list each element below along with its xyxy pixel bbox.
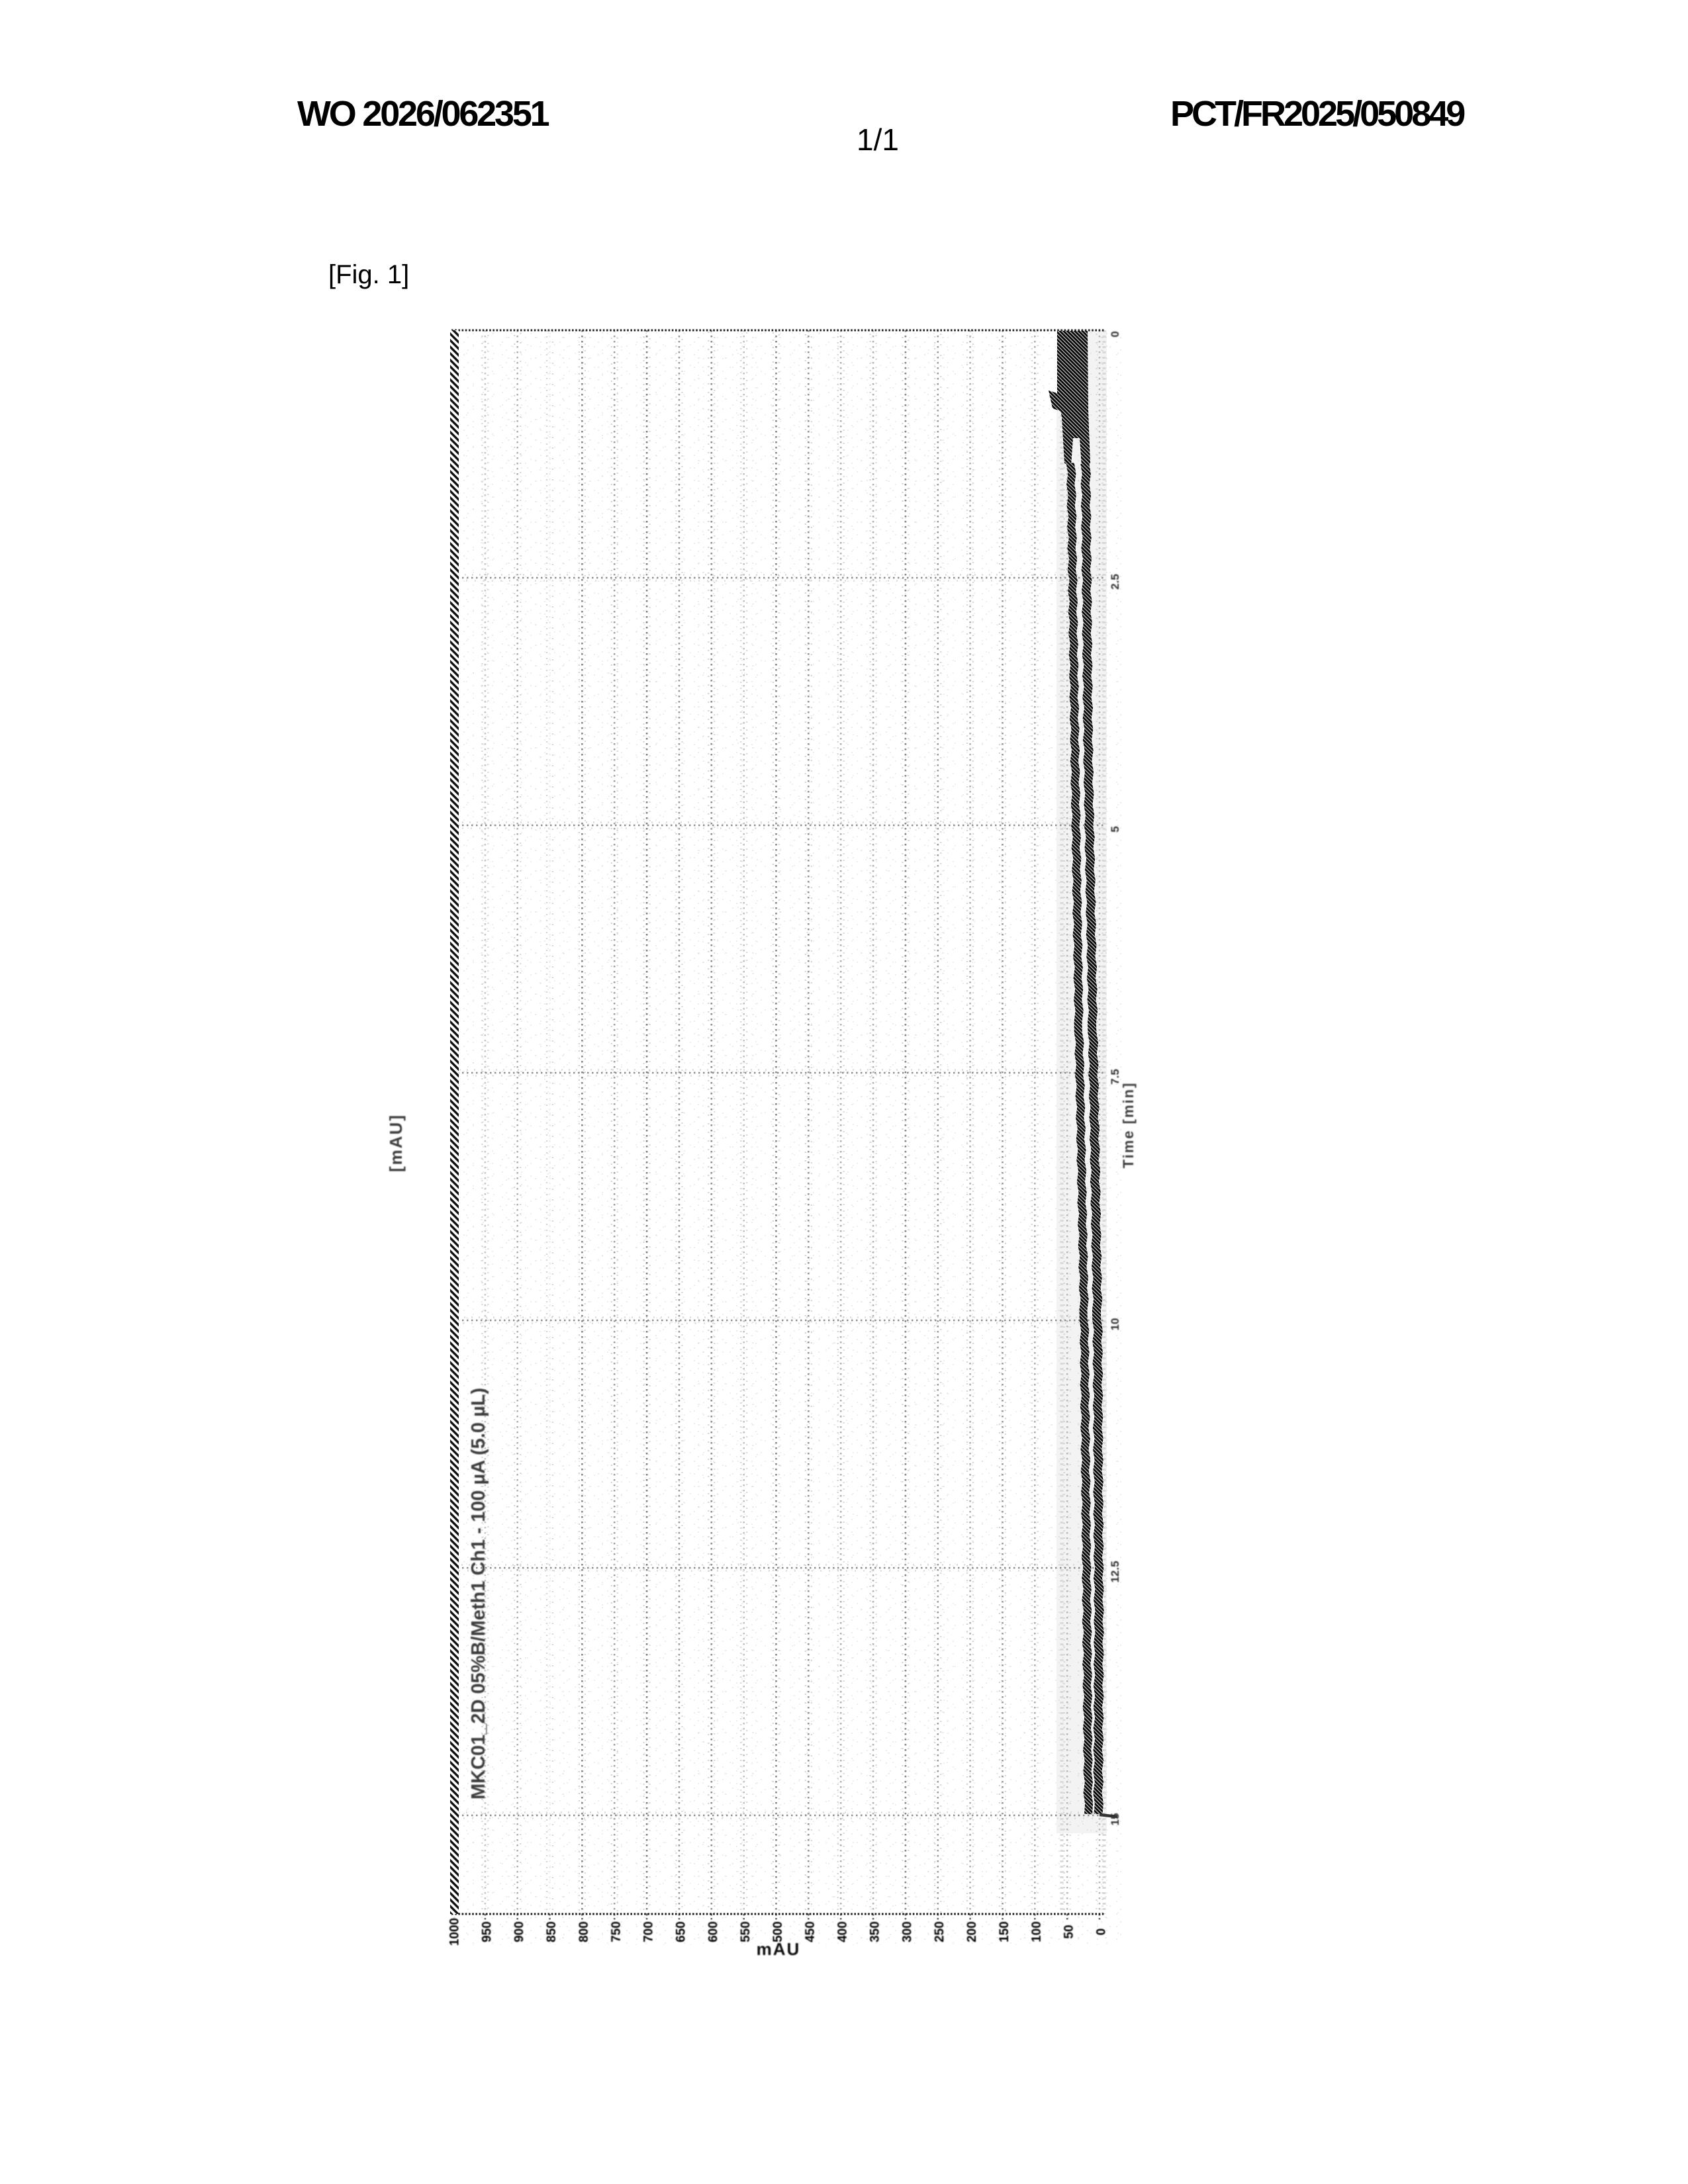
svg-text:550: 550 (739, 1921, 753, 1942)
svg-text:5: 5 (1109, 826, 1121, 832)
svg-text:250: 250 (933, 1921, 947, 1942)
svg-text:15: 15 (1109, 1813, 1121, 1826)
svg-text:600: 600 (706, 1921, 720, 1942)
svg-text:mAU: mAU (757, 1939, 801, 1959)
svg-text:10: 10 (1109, 1318, 1121, 1331)
svg-text:2.5: 2.5 (1109, 574, 1121, 590)
svg-text:400: 400 (836, 1921, 850, 1942)
svg-text:50: 50 (1062, 1925, 1076, 1938)
svg-text:MKC01_2D 05%B/Meth1 Ch1 - 100: MKC01_2D 05%B/Meth1 Ch1 - 100 µA (5.0 µL… (468, 1388, 489, 1799)
svg-text:450: 450 (804, 1921, 818, 1942)
svg-text:850: 850 (545, 1921, 559, 1942)
svg-text:300: 300 (900, 1921, 914, 1942)
svg-text:700: 700 (642, 1921, 656, 1942)
svg-text:1000: 1000 (448, 1918, 462, 1946)
svg-text:800: 800 (577, 1921, 591, 1942)
svg-text:650: 650 (675, 1921, 688, 1942)
svg-text:12.5: 12.5 (1109, 1561, 1121, 1582)
svg-text:750: 750 (610, 1921, 624, 1942)
svg-text:100: 100 (1030, 1921, 1044, 1942)
svg-text:[mAU]: [mAU] (386, 1114, 406, 1172)
svg-text:350: 350 (868, 1921, 882, 1942)
svg-text:950: 950 (480, 1921, 494, 1942)
svg-text:150: 150 (998, 1921, 1011, 1942)
svg-text:900: 900 (512, 1921, 526, 1942)
svg-text:0: 0 (1109, 331, 1121, 337)
svg-text:Time [min]: Time [min] (1120, 1082, 1137, 1169)
svg-text:200: 200 (965, 1921, 979, 1942)
svg-text:0: 0 (1095, 1929, 1109, 1936)
